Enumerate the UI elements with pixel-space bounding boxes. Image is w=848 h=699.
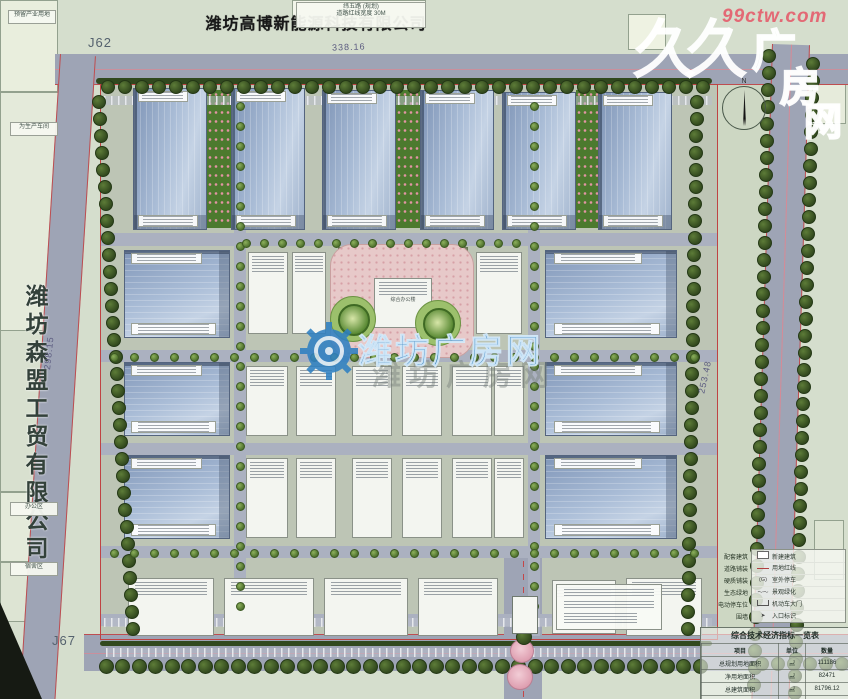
tree-icon: [670, 353, 679, 362]
table-row: 地上建筑面积㎡81529.48: [702, 696, 848, 699]
tree-icon: [689, 146, 703, 160]
tree-icon: [290, 549, 299, 558]
tree-icon: [123, 571, 137, 585]
tree-icon: [250, 353, 259, 362]
tree-icon: [236, 402, 245, 411]
building-label-chip: [236, 215, 296, 227]
tree-icon: [264, 659, 279, 674]
tree-icon: [236, 202, 245, 211]
tree-icon: [798, 346, 812, 360]
building-label-chip: [425, 93, 475, 104]
tree-icon: [111, 384, 125, 398]
tree-icon: [670, 549, 679, 558]
building-label-chip: [554, 524, 660, 536]
tree-icon: [220, 80, 234, 94]
tree-icon: [314, 239, 323, 248]
tree-icon: [801, 227, 815, 241]
ancillary-building: [452, 458, 492, 538]
tree-icon: [339, 80, 353, 94]
tree-icon: [800, 278, 814, 292]
building-label-chip: [603, 95, 653, 106]
dimension-top: 338.16: [332, 41, 366, 52]
tree-icon: [793, 499, 807, 513]
workshop-building: [420, 90, 494, 230]
tree-icon: [102, 248, 116, 262]
tree-icon: [793, 516, 807, 530]
tree-icon: [236, 302, 245, 311]
tree-icon: [758, 236, 772, 250]
tree-icon: [630, 549, 639, 558]
tree-icon: [682, 571, 696, 585]
tree-icon: [152, 80, 166, 94]
tree-icon: [530, 549, 539, 558]
tree-icon: [560, 80, 574, 94]
tree-icon: [190, 549, 199, 558]
tree-icon: [101, 80, 115, 94]
table-row: 总建筑面积㎡81796.12: [702, 683, 848, 696]
building-annotation-text: [300, 462, 333, 478]
ancillary-building: [248, 252, 288, 334]
tree-icon: [755, 355, 769, 369]
tree-icon: [424, 80, 438, 94]
tree-icon: [190, 353, 199, 362]
tree-icon: [165, 659, 180, 674]
parcel-label-reserved: 预留产业用地: [8, 10, 56, 24]
tree-icon: [210, 353, 219, 362]
ancillary-building: [476, 252, 522, 334]
legend-redline-icon: [754, 565, 772, 571]
tree-icon: [594, 80, 608, 94]
tree-icon: [93, 112, 107, 126]
tree-icon: [150, 549, 159, 558]
tree-icon: [390, 80, 404, 94]
tree-icon: [441, 80, 455, 94]
building-annotation-text: [295, 256, 323, 272]
tree-icon: [126, 622, 140, 636]
building-label-chip: [554, 253, 642, 264]
tree-icon: [114, 435, 128, 449]
legend-left-label: 电动停车位: [704, 600, 751, 609]
tree-icon: [230, 549, 239, 558]
tree-icon: [386, 239, 395, 248]
workshop-building: [322, 90, 396, 230]
tree-icon: [236, 482, 245, 491]
workshop-building: [545, 362, 677, 436]
tree-icon: [236, 442, 245, 451]
tree-icon: [690, 95, 704, 109]
tree-icon: [752, 474, 766, 488]
tree-icon: [125, 605, 139, 619]
tree-icon: [543, 80, 557, 94]
tree-icon: [458, 80, 472, 94]
legend-label: 室外停车: [772, 575, 796, 584]
tree-icon: [494, 239, 503, 248]
tree-icon: [170, 353, 179, 362]
tree-icon: [803, 176, 817, 190]
tree-icon: [684, 452, 698, 466]
tree-icon: [103, 265, 117, 279]
grid-label-j62: J62: [88, 35, 112, 50]
tree-icon: [181, 659, 196, 674]
tree-icon: [100, 214, 114, 228]
tree-icon: [688, 231, 702, 245]
tree-icon: [756, 321, 770, 335]
tree-icon: [544, 659, 559, 674]
tree-icon: [124, 588, 138, 602]
tree-icon: [594, 659, 609, 674]
legend-label: 机动车大门: [772, 599, 802, 608]
tree-icon: [373, 80, 387, 94]
tree-icon: [530, 502, 539, 511]
legend-row: 围墙➤入口标识: [704, 610, 846, 622]
tree-icon: [681, 605, 695, 619]
tree-icon: [797, 380, 811, 394]
tree-icon: [801, 244, 815, 258]
indicator-table-body: 项目单位数量总规划用地面积㎡111186净用地面积㎡82471总建筑面积㎡817…: [702, 644, 848, 699]
legend-label: 新建建筑: [772, 552, 796, 561]
ancillary-building: [246, 366, 288, 436]
legend-green-icon: 〜〜: [754, 588, 772, 596]
tree-icon: [510, 549, 519, 558]
north-arrow: N: [722, 86, 766, 130]
tree-icon: [110, 353, 119, 362]
tree-icon: [271, 80, 285, 94]
tree-icon: [795, 431, 809, 445]
building-label-chip: [131, 421, 216, 433]
ancillary-building: [128, 578, 214, 636]
tree-icon: [396, 659, 411, 674]
tree-icon: [270, 353, 279, 362]
building-label-chip: [554, 458, 642, 469]
tree-icon: [577, 659, 592, 674]
building-annotation-text: [406, 462, 439, 478]
ancillary-building: [352, 458, 392, 538]
tree-icon: [429, 659, 444, 674]
tree-icon: [760, 151, 774, 165]
tree-icon: [530, 422, 539, 431]
tree-icon: [104, 282, 118, 296]
tree-icon: [236, 582, 245, 591]
tree-icon: [570, 353, 579, 362]
tree-icon: [169, 80, 183, 94]
tree-icon: [250, 549, 259, 558]
building-label-chip: [131, 253, 202, 264]
tree-icon: [611, 80, 625, 94]
watermark-center-text: 潍坊广房网: [358, 324, 543, 373]
tree-icon: [530, 402, 539, 411]
tree-icon: [490, 549, 499, 558]
tree-icon: [210, 549, 219, 558]
tree-icon: [577, 80, 591, 94]
legend-left-label: 硬质铺装: [704, 576, 751, 585]
tree-icon: [757, 270, 771, 284]
ancillary-building: [418, 578, 498, 636]
table-cell: 总建筑面积: [702, 683, 779, 696]
tree-icon: [804, 142, 818, 156]
tree-icon: [430, 549, 439, 558]
tree-icon: [687, 265, 701, 279]
tree-icon: [759, 185, 773, 199]
tree-icon: [798, 329, 812, 343]
tree-icon: [412, 659, 427, 674]
tree-icon: [130, 549, 139, 558]
tree-icon: [150, 353, 159, 362]
tree-icon: [236, 142, 245, 151]
tree-icon: [236, 362, 245, 371]
building-annotation-text: [250, 370, 284, 386]
tree-icon: [760, 134, 774, 148]
tree-icon: [410, 549, 419, 558]
tree-icon: [296, 239, 305, 248]
tree-icon: [236, 602, 245, 611]
site-plan-image: 潍坊高博新能源科技有限公司 潍坊森盟工贸有限公司 J62 J67 338.16 …: [0, 0, 848, 699]
ancillary-building: [246, 458, 288, 538]
building-label-chip: [603, 215, 663, 227]
tree-icon: [796, 414, 810, 428]
tree-icon: [686, 316, 700, 330]
tree-icon: [198, 659, 213, 674]
tree-icon: [530, 562, 539, 571]
tree-icon: [610, 549, 619, 558]
tree-icon: [350, 549, 359, 558]
tree-icon: [236, 102, 245, 111]
tree-icon: [115, 452, 129, 466]
building-label-chip: [138, 215, 198, 227]
tree-icon: [797, 363, 811, 377]
table-row: 总规划用地面积㎡111186: [702, 657, 848, 670]
tree-icon: [230, 353, 239, 362]
tree-icon: [512, 239, 521, 248]
legend-building-icon: [754, 551, 772, 561]
building-label-chip: [554, 365, 642, 376]
legend-label: 景观绿化: [772, 587, 796, 596]
plaza-building-label: 综合办公楼: [374, 296, 432, 303]
workshop-building: [133, 88, 207, 230]
tree-icon: [530, 222, 539, 231]
tree-icon: [270, 549, 279, 558]
parcel-label-line2: 道路红线宽度 30M: [298, 11, 424, 18]
tree-icon: [186, 80, 200, 94]
tree-icon: [802, 193, 816, 207]
legend-entry: ➤入口标识: [751, 610, 846, 623]
tree-icon: [530, 162, 539, 171]
building-annotation-text: [331, 582, 402, 597]
watermark-gear-icon: [298, 320, 360, 382]
tree-icon: [684, 435, 698, 449]
workshop-building: [124, 455, 230, 539]
building-label-chip: [131, 323, 216, 335]
legend-gate-icon: [754, 600, 772, 608]
tree-icon: [236, 322, 245, 331]
tree-icon: [356, 80, 370, 94]
tree-icon: [795, 448, 809, 462]
legend: 配套建筑新建建筑道路铺装用地红线硬质铺装(G)室外停车生态绿地〜〜景观绿化电动停…: [704, 550, 846, 622]
tree-icon: [112, 401, 126, 415]
tree-icon: [407, 80, 421, 94]
building-label-chip: [554, 323, 660, 335]
tree-icon: [610, 659, 625, 674]
tree-icon: [310, 549, 319, 558]
workshop-building: [545, 250, 677, 338]
indicator-table: 综合技术经济指标一览表 项目单位数量总规划用地面积㎡111186净用地面积㎡82…: [700, 627, 848, 699]
tree-icon: [590, 549, 599, 558]
tree-icon: [530, 202, 539, 211]
tree-icon: [440, 239, 449, 248]
tree-icon: [475, 80, 489, 94]
tree-icon: [305, 80, 319, 94]
legend-entrance-icon: ➤: [754, 613, 772, 619]
tree-icon: [101, 231, 115, 245]
tree-icon: [530, 122, 539, 131]
tree-icon: [118, 80, 132, 94]
tree-icon: [170, 549, 179, 558]
workshop-building: [124, 250, 230, 338]
tree-icon: [236, 182, 245, 191]
tree-icon: [462, 659, 477, 674]
building-label-chip: [131, 458, 202, 469]
building-label-chip: [327, 215, 387, 227]
tree-icon: [690, 112, 704, 126]
tree-icon: [254, 80, 268, 94]
tree-icon: [214, 659, 229, 674]
grid-label-j67: J67: [52, 633, 76, 648]
tree-icon: [370, 549, 379, 558]
legend-label: 用地红线: [772, 563, 796, 572]
table-cell: 项目: [702, 644, 779, 657]
ancillary-building: [296, 458, 336, 538]
tree-icon: [794, 465, 808, 479]
tree-icon: [751, 525, 765, 539]
tree-icon: [689, 180, 703, 194]
table-row: 净用地面积㎡82471: [702, 670, 848, 683]
tree-icon: [332, 239, 341, 248]
gatehouse: [512, 596, 538, 634]
tree-icon: [470, 549, 479, 558]
tree-icon: [135, 80, 149, 94]
tree-icon: [800, 261, 814, 275]
legend-row: 配套建筑新建建筑: [704, 550, 846, 562]
tree-icon: [280, 659, 295, 674]
ancillary-building: [494, 458, 524, 538]
workshop-building: [598, 92, 672, 230]
table-cell: 单位: [779, 644, 806, 657]
legend-left-label: 生态绿地: [704, 588, 751, 597]
table-cell: 111186: [806, 657, 848, 670]
building-annotation-text: [497, 462, 521, 478]
tree-icon: [660, 659, 675, 674]
tree-icon: [690, 353, 699, 362]
building-label-chip: [554, 421, 660, 433]
tree-icon: [530, 242, 539, 251]
tree-icon: [561, 659, 576, 674]
tree-icon: [610, 353, 619, 362]
table-cell: ㎡: [779, 683, 806, 696]
parcel-label-dorm: 宿舍区: [10, 562, 58, 576]
tree-icon: [237, 80, 251, 94]
tree-icon: [236, 502, 245, 511]
tree-icon: [627, 659, 642, 674]
tree-icon: [476, 239, 485, 248]
building-annotation-text: [480, 256, 518, 272]
tree-icon: [445, 659, 460, 674]
watermark-outline-char3: 网: [804, 104, 842, 142]
tree-icon: [590, 353, 599, 362]
tree-icon: [530, 462, 539, 471]
tree-icon: [297, 659, 312, 674]
building-label-chip: [425, 215, 485, 227]
tree-icon: [530, 522, 539, 531]
tree-icon: [288, 80, 302, 94]
tree-icon: [99, 659, 114, 674]
tree-icon: [115, 659, 130, 674]
tree-icon: [689, 163, 703, 177]
tree-icon: [754, 389, 768, 403]
tree-icon: [236, 222, 245, 231]
north-n-label: N: [741, 78, 746, 85]
workshop-building: [124, 362, 230, 436]
tree-icon: [99, 197, 113, 211]
building-annotation-text: [456, 462, 489, 478]
tree-icon: [687, 282, 701, 296]
hedge-strip: [100, 641, 712, 646]
legend-left-label: 配套建筑: [704, 552, 751, 561]
tree-icon: [530, 182, 539, 191]
tree-icon: [330, 549, 339, 558]
tree-icon: [113, 418, 127, 432]
tree-icon: [758, 219, 772, 233]
tree-icon: [404, 239, 413, 248]
building-label-chip: [327, 93, 377, 104]
tree-icon: [236, 122, 245, 131]
workshop-building: [502, 92, 576, 230]
tree-icon: [98, 180, 112, 194]
legend-row: 生态绿地〜〜景观绿化: [704, 586, 846, 598]
tree-icon: [650, 549, 659, 558]
tree-icon: [756, 304, 770, 318]
tree-icon: [509, 80, 523, 94]
tree-icon: [346, 659, 361, 674]
tree-icon: [130, 353, 139, 362]
tree-icon: [530, 302, 539, 311]
tree-icon: [530, 102, 539, 111]
tree-icon: [458, 239, 467, 248]
workshop-building: [545, 455, 677, 539]
tree-icon: [802, 210, 816, 224]
parcel-label-top-box: 纬五路 (规划) 道路红线宽度 30M: [296, 2, 426, 28]
tree-icon: [686, 333, 700, 347]
legend-row: 道路铺装用地红线: [704, 562, 846, 574]
table-cell: ㎡: [779, 657, 806, 670]
tree-icon: [260, 239, 269, 248]
tree-icon: [530, 282, 539, 291]
tree-icon: [683, 486, 697, 500]
table-cell: ㎡: [779, 696, 806, 699]
tree-icon: [688, 214, 702, 228]
tree-icon: [630, 353, 639, 362]
tree-icon: [530, 482, 539, 491]
tree-icon: [132, 659, 147, 674]
tree-icon: [236, 462, 245, 471]
tree-icon: [792, 533, 806, 547]
tree-icon: [368, 239, 377, 248]
tree-icon: [803, 159, 817, 173]
building-annotation-text: [135, 582, 207, 597]
legend-left-label: 道路铺装: [704, 564, 751, 573]
tree-icon: [570, 549, 579, 558]
pink-circle: [507, 664, 533, 690]
legend-label: 入口标识: [772, 611, 796, 620]
tree-icon: [753, 440, 767, 454]
